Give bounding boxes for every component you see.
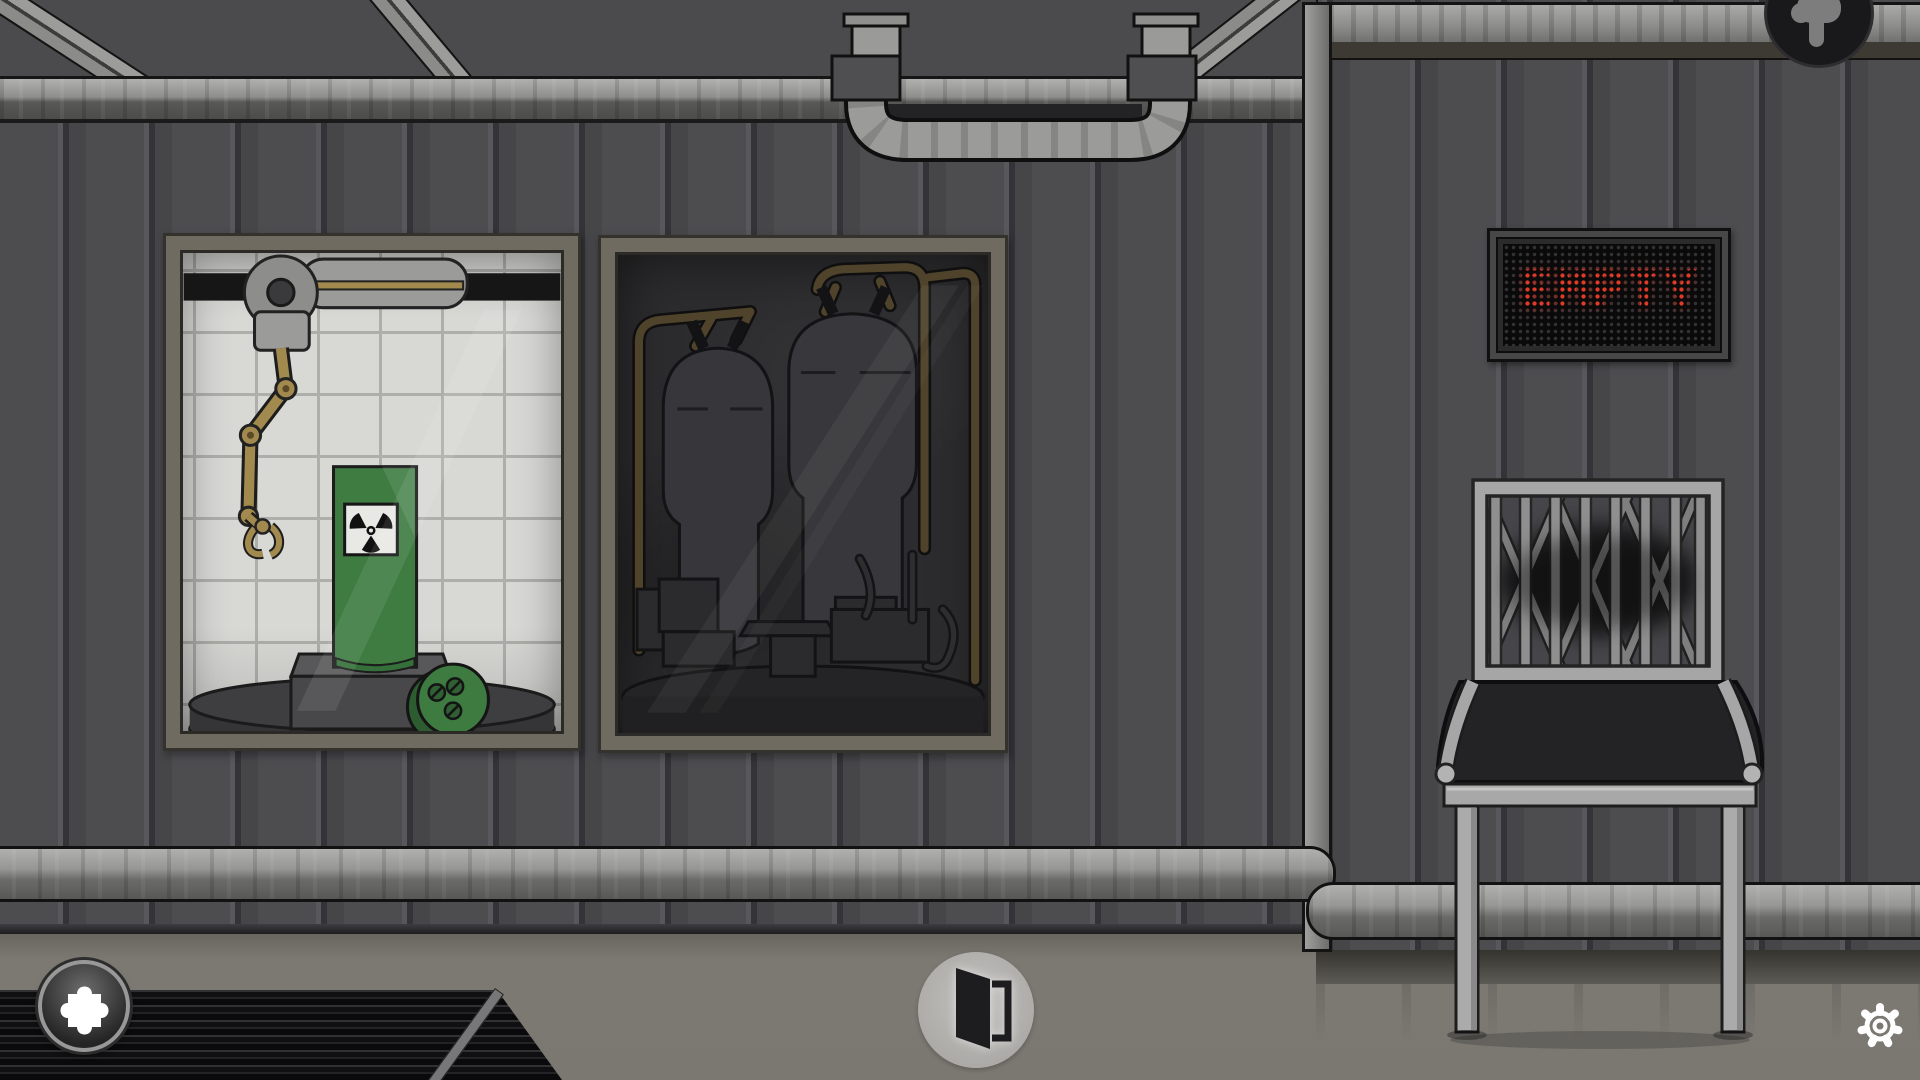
led-sign[interactable]: EMPTY [1487,228,1731,362]
robotic-arm-scene [183,253,561,731]
chair-legs [1447,806,1753,1040]
led-sign-screen: EMPTY [1503,244,1715,346]
chair-back-lattice [1487,492,1709,670]
overhead-u-pipe [818,0,1222,172]
led-mask [1503,244,1715,346]
chair-seat-rail [1444,784,1756,806]
hand-pointing-down-icon [1767,0,1871,65]
ceiling-beam [0,0,268,78]
tank-room-window[interactable] [598,235,1008,753]
tank-room-scene [618,255,988,733]
game-scene: EMPTY [0,0,1920,1080]
inventory-button[interactable] [38,960,130,1052]
exit-button[interactable] [918,952,1034,1068]
settings-button[interactable] [1846,994,1914,1062]
conduit-pipe-left [0,846,1336,902]
tank-room-glass [615,252,991,736]
right-wall-corner [1302,2,1332,952]
gear-icon [1846,994,1914,1062]
containment-window-glass [180,250,564,734]
robotic-arm [239,348,296,555]
pointer-badge[interactable] [1764,0,1874,68]
containment-window[interactable] [163,233,581,751]
chair-cushion [1438,682,1762,782]
ceiling-beam [355,0,516,78]
puzzle-piece-icon [42,964,126,1048]
led-sign-bezel: EMPTY [1496,237,1722,353]
open-door-icon [918,952,1034,1068]
metal-chair[interactable] [1430,470,1780,1050]
